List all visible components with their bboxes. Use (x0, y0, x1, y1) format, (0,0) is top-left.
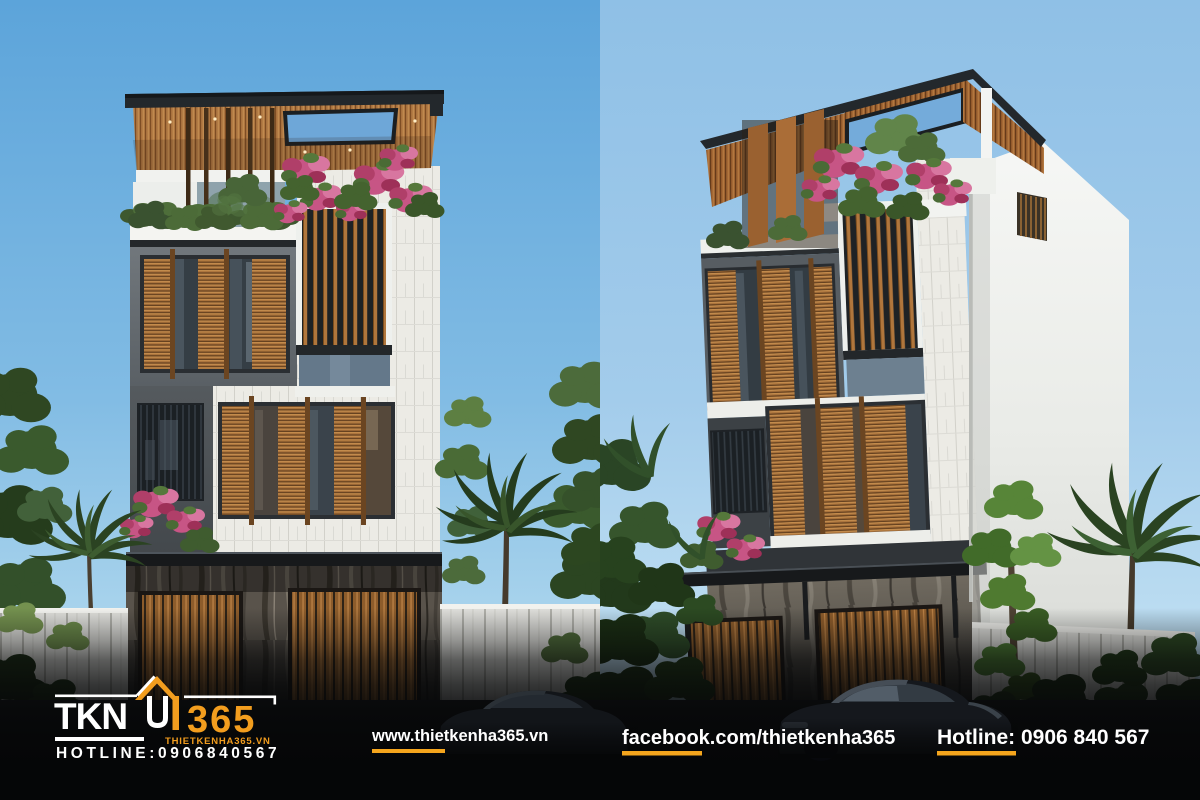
svg-text:facebook.com/thietkenha365: facebook.com/thietkenha365 (622, 727, 895, 749)
svg-text:365: 365 (187, 699, 256, 741)
svg-text:www.thietkenha365.vn: www.thietkenha365.vn (371, 727, 548, 745)
svg-text:Hotline: 0906 840 567: Hotline: 0906 840 567 (937, 726, 1149, 749)
svg-text:TKN: TKN (54, 696, 127, 737)
svg-text:HOTLINE:0906840567: HOTLINE:0906840567 (56, 745, 280, 762)
